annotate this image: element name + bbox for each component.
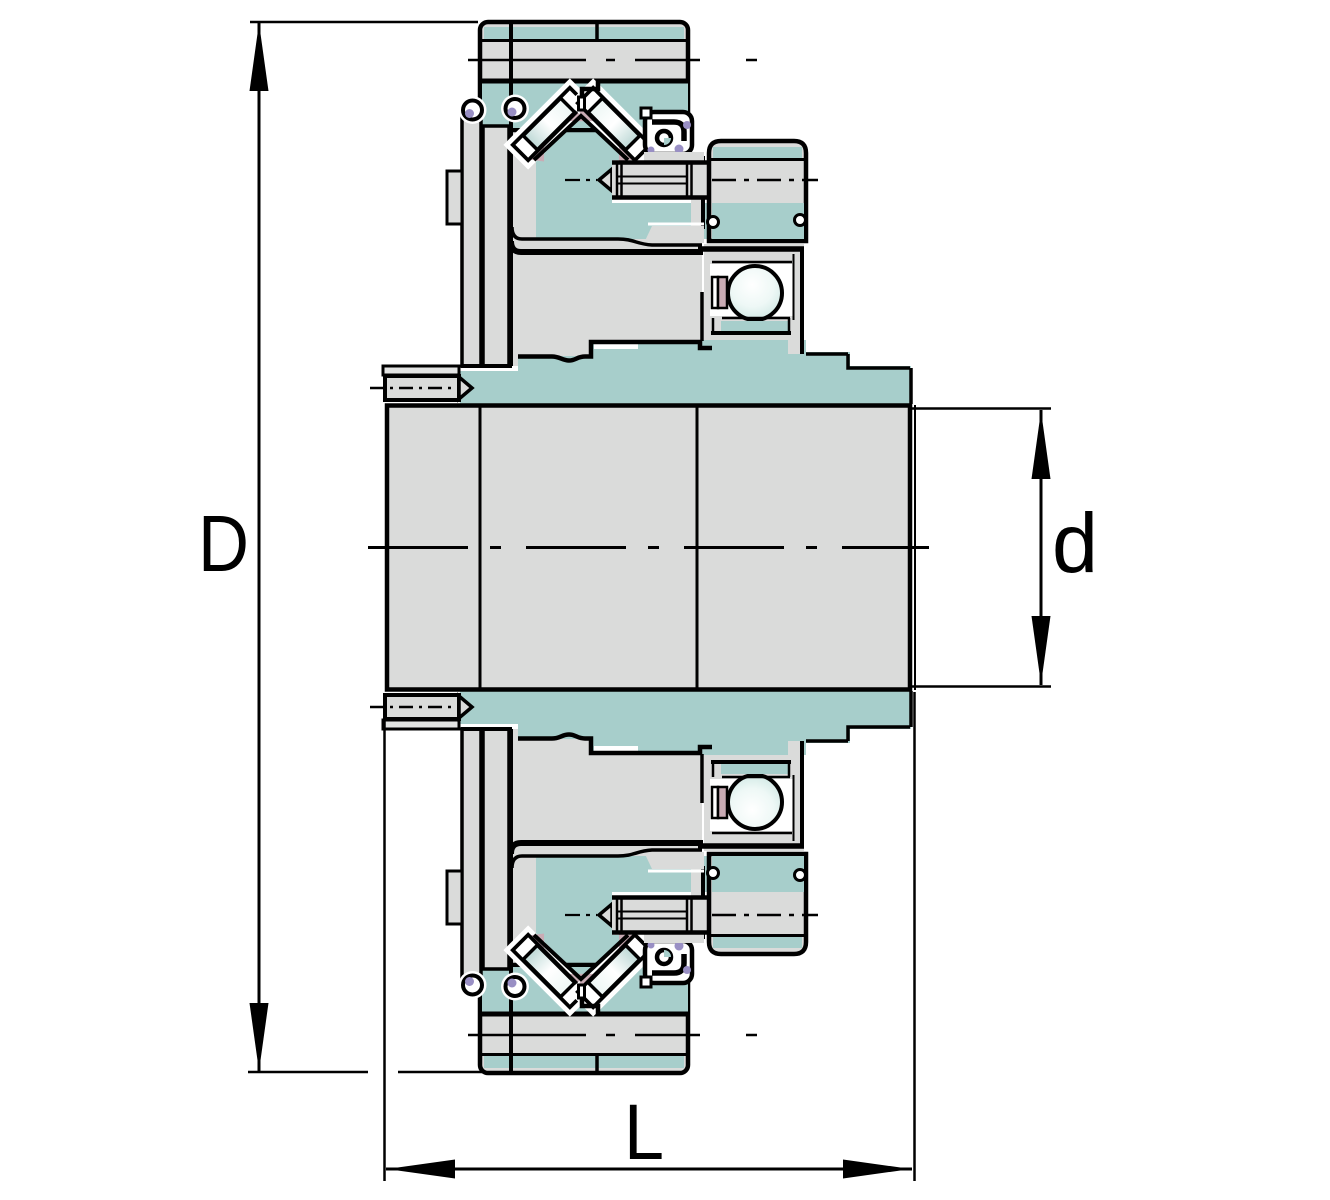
svg-text:D: D [198, 499, 249, 588]
svg-text:L: L [624, 1087, 664, 1176]
svg-text:d: d [1052, 496, 1098, 590]
